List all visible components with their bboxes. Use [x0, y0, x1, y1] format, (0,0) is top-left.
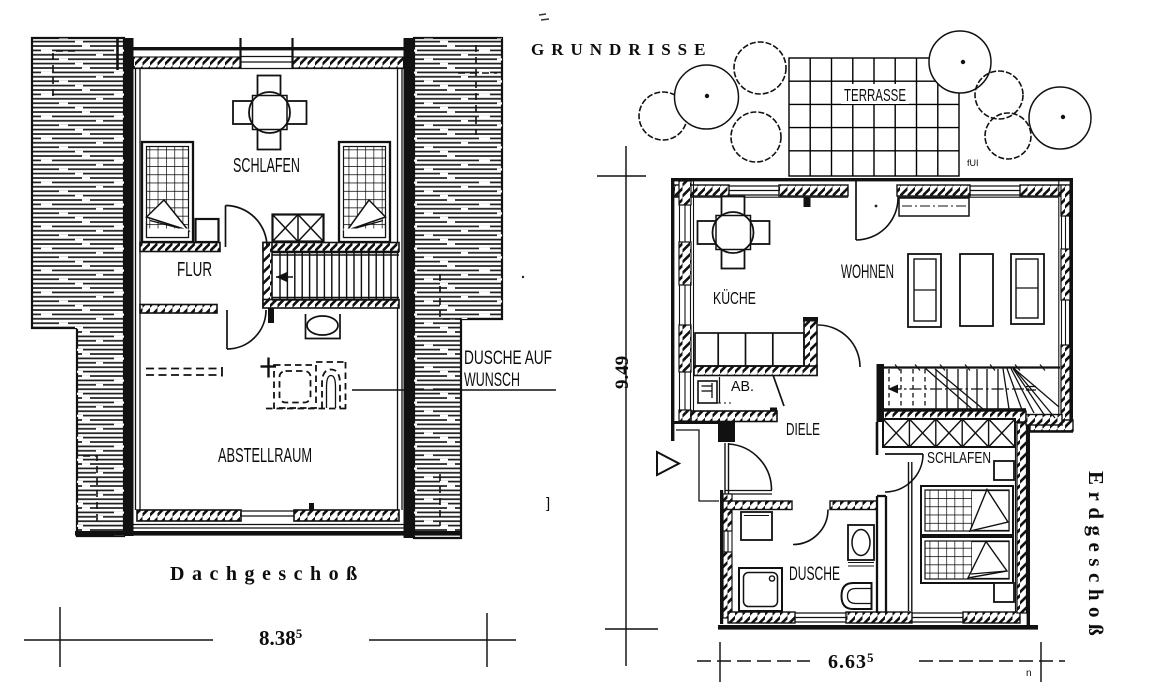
svg-text:KÜCHE: KÜCHE	[713, 288, 756, 308]
svg-text:Erdgeschoß: Erdgeschoß	[1084, 471, 1108, 642]
svg-text:ABSTELLRAUM: ABSTELLRAUM	[218, 445, 312, 467]
svg-text:9.49: 9.49	[612, 356, 633, 389]
svg-text:SCHLAFEN: SCHLAFEN	[233, 155, 300, 177]
svg-text:SCHLAFEN: SCHLAFEN	[927, 450, 991, 467]
svg-text:GRUNDRISSE: GRUNDRISSE	[531, 40, 712, 59]
svg-text:TERRASSE: TERRASSE	[844, 85, 906, 105]
svg-text:DIELE: DIELE	[786, 419, 820, 439]
svg-text:DUSCHE AUF: DUSCHE AUF	[464, 348, 552, 369]
svg-text:Dachgeschoß: Dachgeschoß	[170, 563, 365, 585]
svg-text:DUSCHE: DUSCHE	[789, 564, 840, 585]
svg-text:AB.: AB.	[731, 378, 754, 395]
svg-text:WOHNEN: WOHNEN	[841, 262, 894, 283]
svg-text:n: n	[1026, 668, 1032, 679]
svg-text:]: ]	[546, 495, 550, 512]
svg-text:FLUR: FLUR	[177, 259, 212, 281]
svg-text:fUI: fUI	[967, 158, 979, 168]
svg-text:WUNSCH: WUNSCH	[464, 370, 520, 391]
